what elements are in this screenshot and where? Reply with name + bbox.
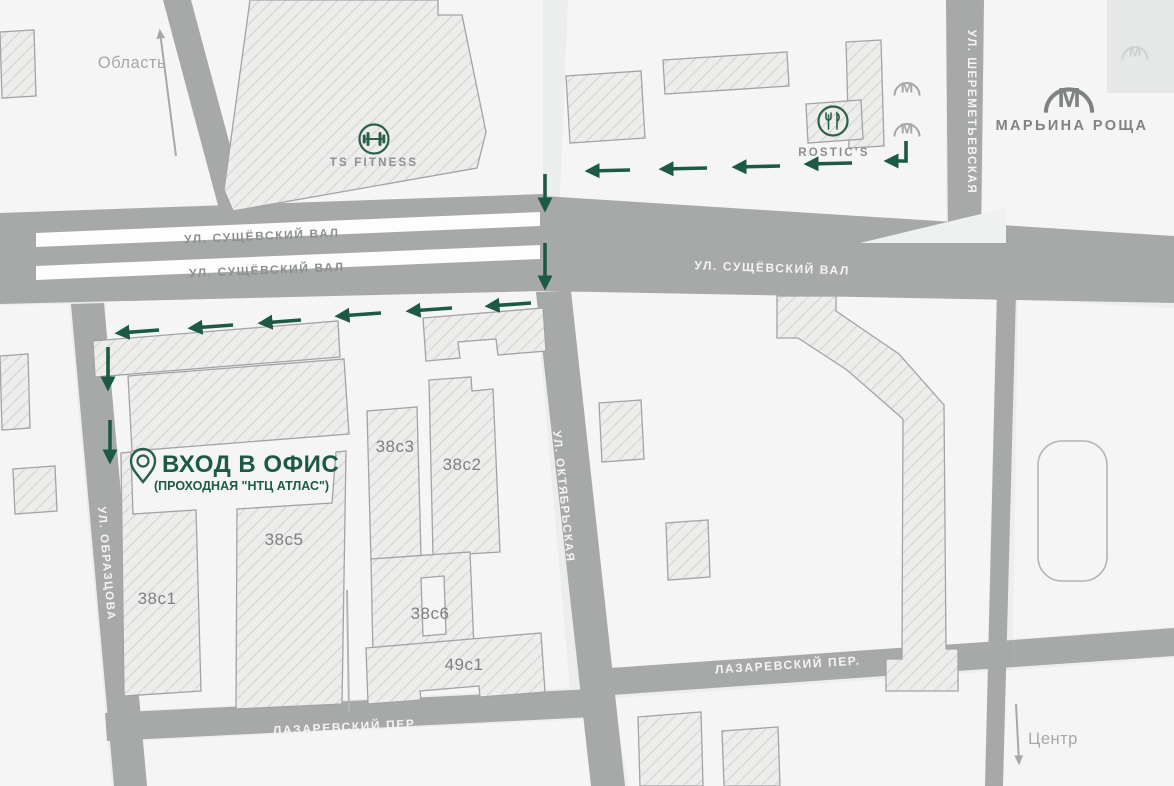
entrance-title: ВХОД В ОФИС	[162, 451, 339, 478]
building	[0, 354, 30, 430]
building	[722, 727, 780, 786]
building-38s3	[367, 407, 421, 560]
city-block	[1013, 300, 1174, 639]
route-arrow	[736, 166, 780, 167]
poi-label-fitness: TS FITNESS	[330, 157, 418, 169]
building-label-38s1: 38с1	[138, 589, 177, 608]
building	[663, 52, 789, 94]
route-arrow	[589, 170, 630, 171]
office-route-map: УЛ. СУЩЁВСКИЙ ВАЛ УЛ. СУЩЁВСКИЙ ВАЛ УЛ. …	[0, 0, 1174, 786]
metro-letter: М	[901, 80, 914, 97]
map-canvas: УЛ. СУЩЁВСКИЙ ВАЛ УЛ. СУЩЁВСКИЙ ВАЛ УЛ. …	[0, 0, 1174, 786]
building-label-38s5: 38с5	[265, 530, 304, 549]
road-sheremetyevskaya	[946, 0, 984, 238]
building	[128, 359, 349, 451]
metro-letter: М	[1129, 44, 1142, 61]
metro-station-label: МАРЬИНА РОЩА	[996, 118, 1149, 134]
building	[638, 712, 703, 786]
poi-label-rostics: ROSTIC'S	[798, 147, 869, 159]
building	[0, 30, 36, 98]
building-label-38s6: 38с6	[411, 604, 450, 623]
building	[13, 466, 57, 514]
building	[599, 400, 644, 462]
building	[666, 520, 710, 580]
building-label-38s2: 38с2	[443, 455, 482, 474]
metro-letter: М	[901, 121, 914, 138]
route-arrow	[663, 168, 707, 169]
street-label-sheremetyevskaya: УЛ. ШЕРЕМЕТЬЕВСКАЯ	[965, 30, 977, 195]
direction-label-north: Область	[98, 54, 166, 72]
entrance-subtitle: (ПРОХОДНАЯ "НТЦ АТЛАС")	[154, 479, 329, 493]
building	[566, 71, 645, 143]
metro-letter: М	[1057, 82, 1080, 113]
direction-label-south: Центр	[1028, 730, 1078, 748]
building-label-38s3: 38с3	[376, 437, 415, 456]
route-arrow	[808, 163, 852, 164]
building-label-49s1: 49с1	[445, 655, 484, 674]
